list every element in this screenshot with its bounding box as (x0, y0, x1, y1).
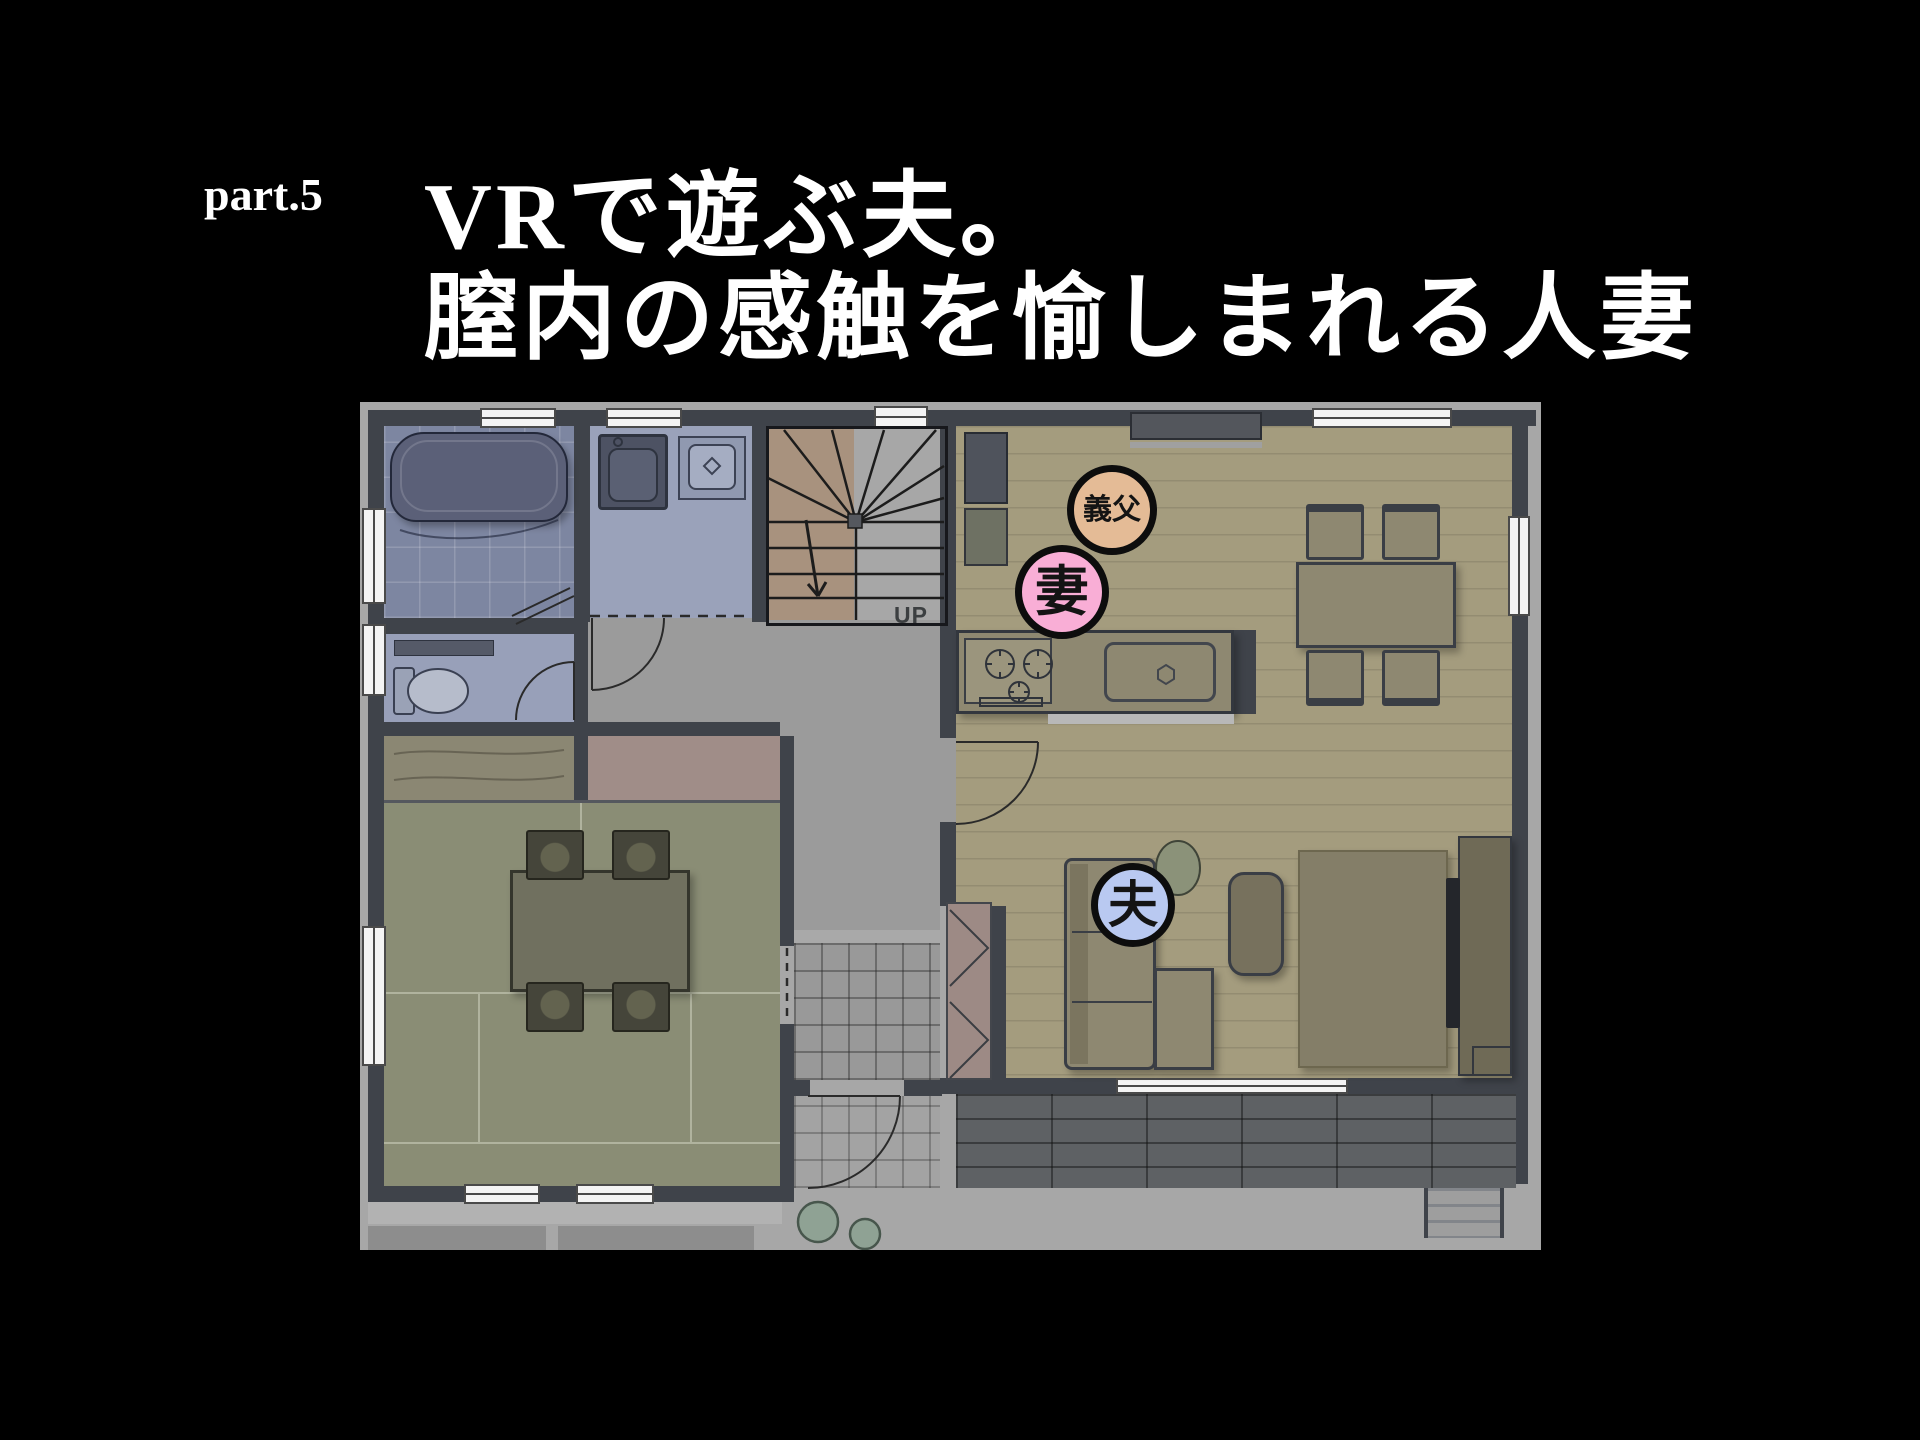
plan-linework (360, 402, 1541, 1250)
marker-father-in-law: 義父 (1067, 465, 1157, 555)
marker-husband: 夫 (1091, 863, 1175, 947)
slide: part.5 VRで遊ぶ夫。 膣内の感触を愉しまれる人妻 (0, 0, 1920, 1440)
marker-father-in-law-label: 義父 (1083, 496, 1141, 525)
part-label: part.5 (204, 168, 323, 221)
title-line-2: 膣内の感触を愉しまれる人妻 (424, 242, 1698, 378)
marker-wife-label: 妻 (1035, 565, 1089, 619)
marker-wife: 妻 (1015, 545, 1109, 639)
marker-husband-label: 夫 (1108, 880, 1158, 930)
floor-plan-image: UP (360, 402, 1541, 1250)
